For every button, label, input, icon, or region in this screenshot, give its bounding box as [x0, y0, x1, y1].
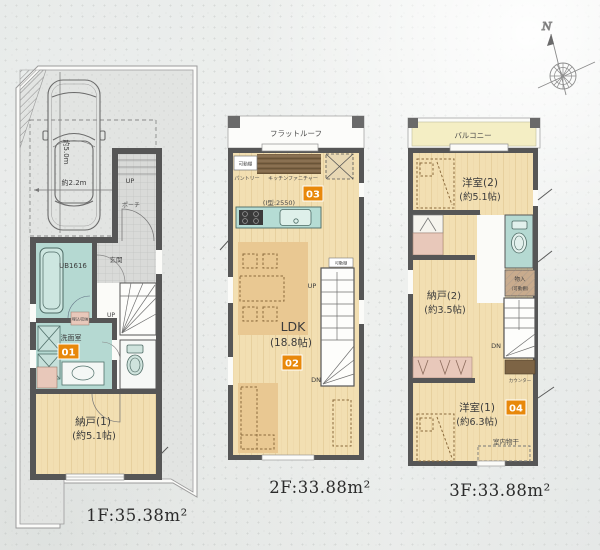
washroom-badge-number: 01	[62, 348, 76, 359]
stairs-down-label-2f: DN	[311, 376, 321, 384]
kitchen-badge-number: 03	[306, 190, 320, 201]
toilet-tank-3f	[512, 221, 527, 229]
window-2f-top	[262, 144, 318, 151]
window-2f-right-b	[359, 300, 364, 324]
window-2f-bottom	[262, 455, 314, 460]
stove	[239, 210, 263, 225]
floor1-area-label: 1F:35.38m²	[86, 506, 187, 525]
closet-shelf-label-3f: (可動棚)	[511, 285, 528, 292]
closet-label-3f: 物入	[514, 275, 526, 283]
flat-roof-label: フラットルーフ	[270, 129, 322, 138]
bedroom1-badge-number: 04	[509, 404, 523, 415]
flat-roof-corner-left	[228, 116, 240, 128]
floor-plan-3f: バルコニー 洋室(2) (約5.1帖) 納戸(2) (約3.5帖)	[408, 118, 554, 500]
window-2f-right-a	[359, 183, 364, 197]
flat-roof-corner-right	[352, 116, 364, 128]
storage-room-3f-label: 納戸(2)	[427, 289, 461, 302]
ldk-size-label: (18.8帖)	[270, 336, 312, 349]
vanity	[62, 362, 104, 385]
floor-plan-page: 約5.0m 約2.2m UP ポーチ 玄関 UB1616	[0, 0, 600, 550]
closet-box-3f	[505, 270, 535, 296]
washroom-label: 洗面室	[61, 333, 82, 342]
stairs-shelf-label: 可動棚	[335, 260, 348, 267]
bedroom2-label: 洋室(2)	[462, 176, 498, 189]
storage-room-1f-size: (約5.1帖)	[72, 429, 116, 442]
floor2-area-label: 2F:33.88m²	[269, 478, 370, 497]
storage2-wall	[413, 255, 475, 260]
bedroom1-wall	[413, 378, 475, 383]
kitchen-furniture-band	[257, 154, 321, 174]
window-3f-bottom	[477, 461, 505, 466]
stairs-up-label-1f: UP	[107, 312, 115, 319]
washroom-door-gap	[112, 340, 117, 360]
bedroom2-size-label: (約5.1帖)	[459, 191, 501, 203]
car-width-label: 約2.2m	[62, 178, 87, 187]
ldk-label: LDK	[281, 319, 307, 334]
door-1f-right	[156, 250, 162, 274]
hall-storage-wall	[36, 389, 156, 394]
counter-3f	[505, 360, 535, 374]
window-2f-left-a	[228, 277, 233, 303]
window-3f-right-a	[533, 190, 538, 206]
balcony-corner-right	[530, 118, 540, 128]
bedroom1-label: 洋室(1)	[459, 401, 495, 414]
bedroom1-size-label: (約6.3帖)	[456, 416, 498, 428]
kitchen-furniture-label: キッチンファニチャー	[268, 176, 318, 182]
stairs-down-label-3f: DN	[491, 342, 501, 350]
floor-plan-2f: フラットルーフ 可動棚 パントリー キッチンファニチャー 03 (I型:2550…	[220, 116, 371, 497]
entrance-floor	[97, 243, 156, 283]
shoe-box	[37, 367, 57, 388]
counter-label: カウンター	[509, 377, 532, 384]
roof-window-box	[326, 154, 353, 179]
dim-ticks-3f	[538, 189, 554, 398]
approach-up-label: UP	[126, 177, 135, 185]
closet-pink-3f	[413, 233, 443, 255]
unit-bath-label: UB1616	[59, 262, 87, 270]
stairwell-2f	[321, 268, 354, 386]
stairs-up-label-2f: UP	[308, 282, 317, 290]
window-2f-left-b	[228, 357, 233, 385]
kitchen-type-label: (I型:2550)	[263, 198, 295, 207]
movable-shelf-label-2f: 可動棚	[239, 161, 253, 168]
bath-hall-wall	[92, 243, 97, 323]
living-rug	[238, 383, 278, 453]
car-length-label: 約5.0m	[62, 140, 71, 165]
bedroom2-wall	[413, 210, 480, 215]
porch-label: ポーチ	[122, 201, 140, 209]
north-label: N	[541, 20, 552, 33]
window-1f-left-b	[30, 350, 36, 368]
floor-plan-canvas: 約5.0m 約2.2m UP ポーチ 玄関 UB1616	[0, 0, 600, 550]
compass-rose: N	[538, 20, 595, 95]
balcony-label: バルコニー	[454, 131, 491, 140]
window-3f-top	[450, 144, 508, 151]
dim-tick-2f	[220, 240, 229, 250]
ldk-badge-number: 02	[285, 359, 299, 370]
indoor-drying-label: 室内物干	[493, 437, 520, 446]
balcony-corner-left	[408, 118, 418, 128]
bathtub	[40, 248, 63, 313]
window-1f-left-a	[30, 304, 36, 322]
recessed-storage-label: 埋込収納	[72, 316, 89, 323]
toilet-tank-1f	[127, 345, 143, 353]
storage-room-3f-size: (約3.5帖)	[424, 304, 466, 316]
floor3-area-label: 3F:33.88m²	[449, 481, 550, 500]
window-3f-left-a	[408, 270, 413, 294]
floor-plan-1f: 約5.0m 約2.2m UP ポーチ 玄関 UB1616	[16, 66, 197, 528]
storage-room-1f-label: 納戸(1)	[75, 415, 111, 428]
north-arrow	[547, 34, 554, 46]
hall-3f	[477, 215, 505, 303]
pantry-label: パントリー	[234, 176, 259, 182]
